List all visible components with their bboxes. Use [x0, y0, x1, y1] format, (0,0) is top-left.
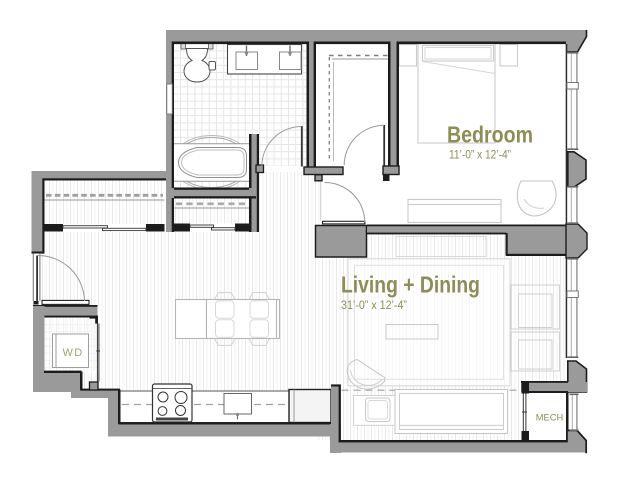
svg-text:31’-0” x 12’-4”: 31’-0” x 12’-4”	[341, 300, 407, 312]
svg-text:11’-0” x 12’-4”: 11’-0” x 12’-4”	[449, 150, 511, 162]
svg-text:MECH: MECH	[536, 413, 564, 424]
svg-text:WD: WD	[63, 347, 84, 359]
svg-text:Living + Dining: Living + Dining	[341, 272, 480, 298]
svg-text:Bedroom: Bedroom	[447, 122, 533, 148]
